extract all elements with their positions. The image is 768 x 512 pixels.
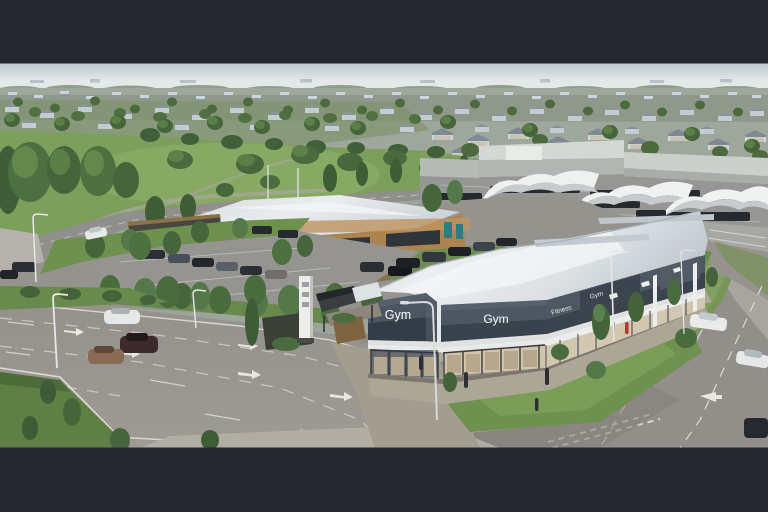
svg-text:Gym: Gym (483, 312, 508, 326)
svg-text:Gym: Gym (385, 308, 411, 322)
